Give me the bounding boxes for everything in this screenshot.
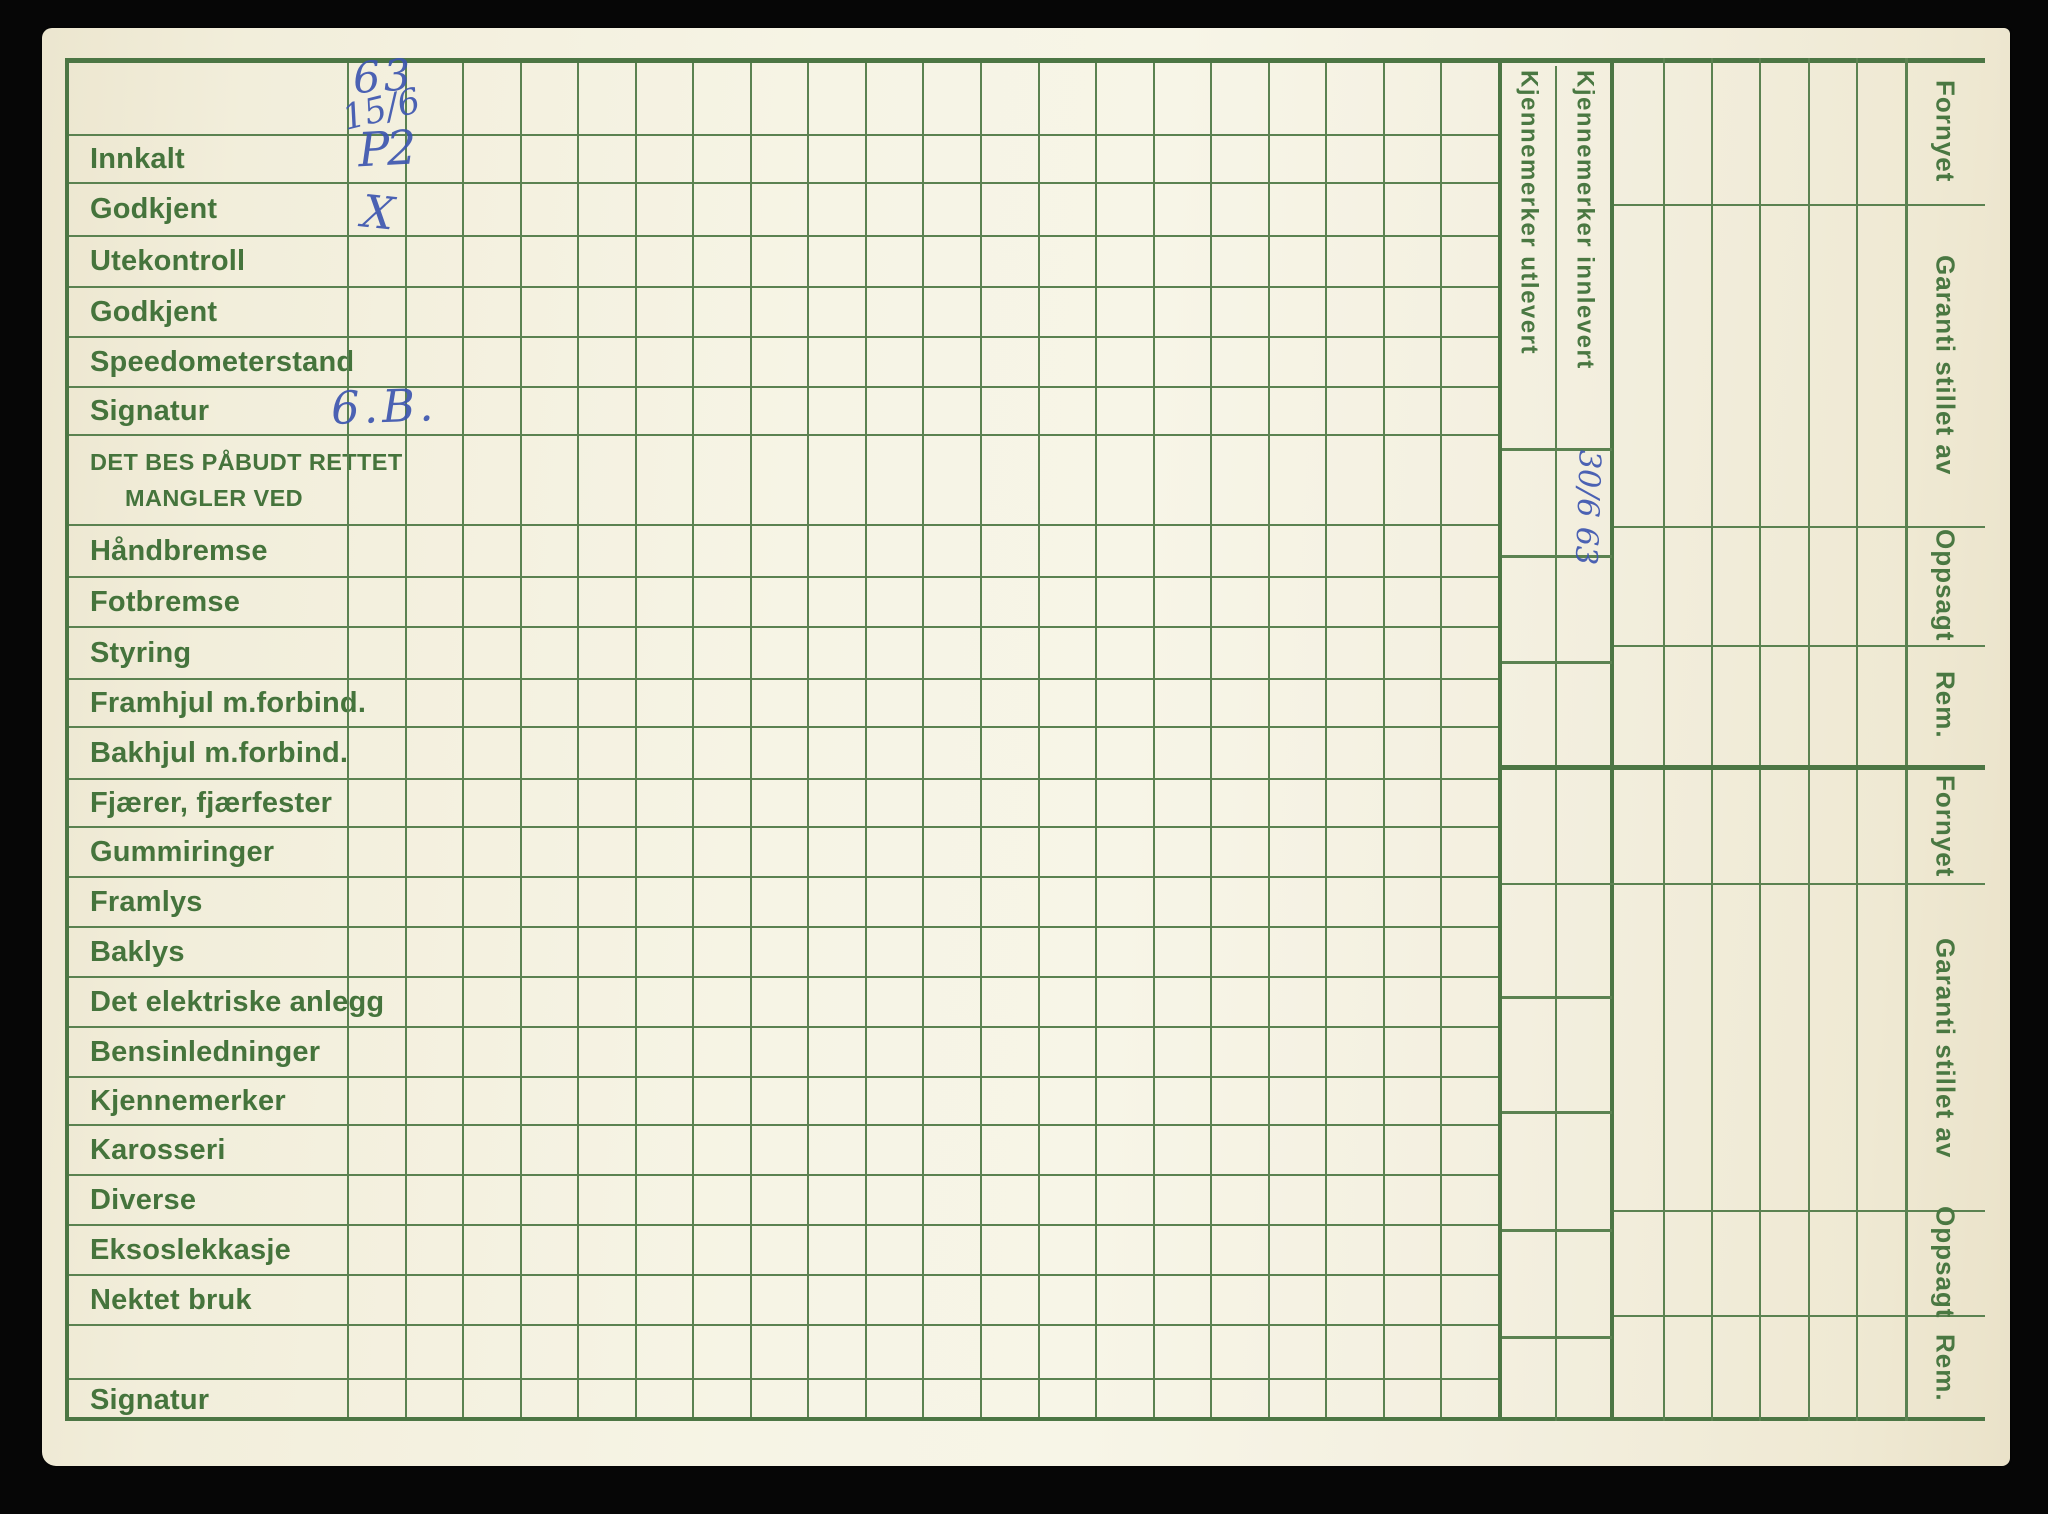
grid-cell: [865, 628, 923, 678]
grid-cell: [1038, 1176, 1096, 1224]
form-row: [65, 1326, 1498, 1380]
grid-cell: [462, 338, 520, 386]
grid-cell: [577, 1078, 635, 1124]
grid-cell: [1268, 1380, 1326, 1421]
grid-cell: [1095, 288, 1153, 336]
grid-cell: [635, 828, 693, 876]
grid-cell: [1440, 1226, 1498, 1274]
grid-cell: [577, 288, 635, 336]
grid-cell: [1095, 978, 1153, 1026]
grid-cell: [1210, 1326, 1268, 1378]
row-cells: [347, 526, 1498, 576]
grid-cell: [1383, 680, 1441, 726]
grid-cell: [865, 1326, 923, 1378]
grid-cell: [865, 1126, 923, 1174]
form-row: Kjennemerker: [65, 1078, 1498, 1126]
row-cells: [347, 828, 1498, 876]
grid-cell: [807, 680, 865, 726]
grid-cell: [462, 58, 520, 134]
grid-cell: [1038, 1226, 1096, 1274]
grid-cell: [980, 237, 1038, 286]
grid-cell: [1268, 1078, 1326, 1124]
form-row: Utekontroll: [65, 237, 1498, 288]
grid-cell: [1268, 288, 1326, 336]
grid-cell: [1325, 1126, 1383, 1174]
grid-cell: [1325, 184, 1383, 235]
grid-cell: [807, 628, 865, 678]
grid-cell: [1153, 928, 1211, 976]
grid-cell: [980, 578, 1038, 626]
grid-cell: [577, 338, 635, 386]
grid-cell: [577, 1028, 635, 1076]
margin-section-rem-: Rem.: [1911, 645, 1979, 765]
grid-cell: [1325, 728, 1383, 778]
grid-cell: [750, 436, 808, 524]
grid-cell: [1325, 237, 1383, 286]
grid-cell: [807, 184, 865, 235]
grid-cell: [1383, 728, 1441, 778]
grid-cell: [347, 828, 405, 876]
grid-cell: [347, 526, 405, 576]
grid-cell: [807, 526, 865, 576]
grid-cell: [1210, 237, 1268, 286]
grid-cell: [520, 1176, 578, 1224]
grid-cell: [635, 1226, 693, 1274]
grid-cell: [1440, 184, 1498, 235]
grid-cell: [635, 58, 693, 134]
form-row: Baklys: [65, 928, 1498, 978]
grid-cell: [1268, 526, 1326, 576]
grid-cell: [692, 1176, 750, 1224]
grid-cell: [462, 578, 520, 626]
grid-cell: [1383, 628, 1441, 678]
grid-cell: [462, 1126, 520, 1174]
grid-cell: [635, 288, 693, 336]
grid-cell: [692, 338, 750, 386]
grid-cell: [750, 1176, 808, 1224]
grid-cell: [405, 1380, 463, 1421]
row-label: [65, 58, 347, 134]
grid-cell: [1153, 578, 1211, 626]
grid-cell: [520, 978, 578, 1026]
grid-cell: [1268, 58, 1326, 134]
grid-cell: [347, 1276, 405, 1324]
grid-cell: [577, 1176, 635, 1224]
grid-cell: [462, 1326, 520, 1378]
grid-cell: [692, 237, 750, 286]
grid-cell: [635, 878, 693, 926]
grid-cell: [1210, 878, 1268, 926]
grid-cell: [922, 338, 980, 386]
grid-cell: [1153, 1078, 1211, 1124]
form-row: Godkjent: [65, 288, 1498, 338]
form-row: Håndbremse: [65, 526, 1498, 578]
grid-cell: [865, 1078, 923, 1124]
grid-cell: [807, 136, 865, 182]
grid-cell: [1383, 1226, 1441, 1274]
grid-cell: [692, 728, 750, 778]
grid-cell: [462, 780, 520, 826]
grid-cell: [807, 1226, 865, 1274]
grid-cell: [1325, 526, 1383, 576]
grid-cell: [922, 680, 980, 726]
grid-cell: [405, 680, 463, 726]
grid-cell: [520, 1126, 578, 1174]
kjennemerker-innlevert-label: Kjennemerker innlevert: [1571, 70, 1599, 410]
grid-cell: [1210, 338, 1268, 386]
grid-cell: [750, 978, 808, 1026]
grid-cell: [635, 1126, 693, 1174]
grid-cell: [750, 728, 808, 778]
grid-cell: [692, 436, 750, 524]
grid-cell: [922, 526, 980, 576]
row-cells: [347, 628, 1498, 678]
row-cells: [347, 1078, 1498, 1124]
margin-section-label: Garanti stillet av: [1930, 255, 1961, 475]
main-table: InnkaltGodkjentUtekontrollGodkjentSpeedo…: [65, 58, 1498, 1421]
grid-cell: [577, 388, 635, 434]
row-cells: [347, 978, 1498, 1026]
kjennemerker-utlevert-label: Kjennemerker utlevert: [1515, 70, 1543, 410]
grid-cell: [1210, 628, 1268, 678]
grid-cell: [1153, 1126, 1211, 1174]
grid-cell: [692, 526, 750, 576]
row-cells: [347, 136, 1498, 182]
grid-cell: [1210, 1380, 1268, 1421]
row-label: Karosseri: [65, 1126, 347, 1174]
grid-cell: [347, 728, 405, 778]
grid-cell: [980, 1028, 1038, 1076]
grid-cell: [1038, 1380, 1096, 1421]
row-label: DET BES PÅBUDT RETTETMANGLER VED: [65, 436, 347, 524]
scanned-document: { "form": { "rows": [ {"label": ""}, {"l…: [0, 0, 2048, 1514]
grid-cell: [347, 1176, 405, 1224]
grid-cell: [520, 436, 578, 524]
grid-cell: [922, 1078, 980, 1124]
grid-cell: [347, 1380, 405, 1421]
grid-cell: [520, 526, 578, 576]
grid-cell: [405, 878, 463, 926]
grid-cell: [692, 1276, 750, 1324]
grid-cell: [692, 184, 750, 235]
grid-cell: [347, 928, 405, 976]
grid-cell: [807, 1078, 865, 1124]
grid-cell: [1095, 526, 1153, 576]
grid-cell: [347, 237, 405, 286]
grid-cell: [1383, 878, 1441, 926]
grid-cell: [692, 288, 750, 336]
grid-cell: [692, 1078, 750, 1124]
grid-line: [1502, 1336, 1612, 1339]
grid-cell: [520, 1276, 578, 1324]
grid-cell: [1095, 388, 1153, 434]
grid-cell: [1153, 184, 1211, 235]
grid-cell: [1210, 526, 1268, 576]
grid-cell: [462, 828, 520, 876]
grid-cell: [980, 978, 1038, 1026]
grid-cell: [405, 1326, 463, 1378]
row-label: Bakhjul m.forbind.: [65, 728, 347, 778]
grid-cell: [1210, 780, 1268, 826]
grid-cell: [922, 1380, 980, 1421]
row-label: Eksoslekkasje: [65, 1226, 347, 1274]
grid-cell: [865, 288, 923, 336]
grid-cell: [635, 780, 693, 826]
grid-cell: [405, 1276, 463, 1324]
margin-section-garanti-stillet-av: Garanti stillet av: [1911, 204, 1979, 526]
grid-cell: [1095, 1226, 1153, 1274]
grid-cell: [1210, 388, 1268, 434]
grid-cell: [980, 1380, 1038, 1421]
grid-cell: [750, 828, 808, 876]
grid-cell: [692, 628, 750, 678]
grid-cell: [635, 928, 693, 976]
grid-cell: [1383, 237, 1441, 286]
grid-cell: [1210, 1176, 1268, 1224]
grid-cell: [462, 136, 520, 182]
grid-cell: [807, 1326, 865, 1378]
form-row: Framhjul m.forbind.: [65, 680, 1498, 728]
row-cells: [347, 680, 1498, 726]
grid-line: [65, 1417, 1985, 1421]
grid-cell: [1440, 978, 1498, 1026]
form-row: Fjærer, fjærfester: [65, 780, 1498, 828]
grid-cell: [1440, 628, 1498, 678]
grid-cell: [577, 578, 635, 626]
handwriting-innlevert-date: 30/6 63: [1561, 450, 1611, 615]
grid-cell: [1095, 1078, 1153, 1124]
grid-cell: [980, 728, 1038, 778]
grid-cell: [1268, 978, 1326, 1026]
row-cells: [347, 436, 1498, 524]
grid-cell: [405, 978, 463, 1026]
grid-cell: [1210, 184, 1268, 235]
grid-cell: [405, 578, 463, 626]
grid-cell: [1038, 1078, 1096, 1124]
grid-cell: [1383, 58, 1441, 134]
grid-cell: [750, 136, 808, 182]
grid-cell: [1440, 1126, 1498, 1174]
grid-cell: [865, 388, 923, 434]
grid-cell: [347, 1226, 405, 1274]
form-row: Gummiringer: [65, 828, 1498, 878]
grid-cell: [1038, 136, 1096, 182]
margin-section-garanti-stillet-av: Garanti stillet av: [1911, 887, 1979, 1210]
grid-cell: [405, 780, 463, 826]
grid-cell: [1325, 780, 1383, 826]
grid-cell: [405, 928, 463, 976]
grid-cell: [1210, 288, 1268, 336]
margin-section-label: Oppsagt: [1930, 529, 1961, 641]
grid-cell: [1383, 578, 1441, 626]
grid-cell: [577, 184, 635, 235]
grid-cell: [807, 578, 865, 626]
grid-cell: [1153, 780, 1211, 826]
row-cells: [347, 878, 1498, 926]
row-label: Fotbremse: [65, 578, 347, 626]
grid-cell: [980, 1326, 1038, 1378]
margin-section-label: Garanti stillet av: [1930, 938, 1961, 1158]
form-row: Diverse: [65, 1176, 1498, 1226]
row-cells: [347, 728, 1498, 778]
grid-cell: [750, 526, 808, 576]
grid-cell: [405, 1126, 463, 1174]
grid-cell: [1383, 1078, 1441, 1124]
grid-cell: [1210, 978, 1268, 1026]
grid-cell: [1325, 1380, 1383, 1421]
grid-cell: [980, 878, 1038, 926]
margin-section-oppsagt: Oppsagt: [1911, 526, 1979, 645]
grid-cell: [1038, 1326, 1096, 1378]
grid-cell: [692, 780, 750, 826]
handwriting-innkalt: P2: [357, 121, 415, 179]
grid-cell: [922, 1276, 980, 1324]
grid-cell: [577, 436, 635, 524]
grid-cell: [1383, 928, 1441, 976]
grid-cell: [1153, 237, 1211, 286]
grid-cell: [1210, 1276, 1268, 1324]
grid-cell: [1268, 1126, 1326, 1174]
grid-cell: [980, 388, 1038, 434]
grid-cell: [1325, 1176, 1383, 1224]
grid-cell: [692, 978, 750, 1026]
grid-cell: [750, 1028, 808, 1076]
grid-cell: [807, 780, 865, 826]
grid-cell: [922, 436, 980, 524]
grid-cell: [462, 680, 520, 726]
grid-cell: [1268, 728, 1326, 778]
grid-cell: [520, 680, 578, 726]
grid-cell: [922, 828, 980, 876]
grid-cell: [1210, 436, 1268, 524]
grid-cell: [520, 878, 578, 926]
grid-cell: [1210, 1226, 1268, 1274]
grid-cell: [1268, 780, 1326, 826]
grid-cell: [577, 1326, 635, 1378]
grid-cell: [405, 288, 463, 336]
grid-cell: [635, 526, 693, 576]
grid-cell: [577, 1126, 635, 1174]
grid-cell: [807, 728, 865, 778]
grid-cell: [922, 780, 980, 826]
grid-cell: [405, 184, 463, 235]
grid-cell: [1153, 136, 1211, 182]
grid-cell: [405, 1176, 463, 1224]
form-row: Bensinledninger: [65, 1028, 1498, 1078]
grid-cell: [1038, 184, 1096, 235]
grid-cell: [1153, 1226, 1211, 1274]
grid-cell: [1383, 436, 1441, 524]
grid-cell: [980, 1176, 1038, 1224]
grid-cell: [750, 1276, 808, 1324]
grid-cell: [1038, 728, 1096, 778]
grid-cell: [635, 338, 693, 386]
grid-cell: [1095, 58, 1153, 134]
grid-cell: [692, 1326, 750, 1378]
grid-cell: [865, 928, 923, 976]
grid-cell: [1325, 828, 1383, 876]
grid-cell: [1440, 680, 1498, 726]
grid-cell: [405, 526, 463, 576]
grid-cell: [865, 338, 923, 386]
grid-cell: [807, 1028, 865, 1076]
grid-cell: [692, 388, 750, 434]
form-row: Det elektriske anlegg: [65, 978, 1498, 1028]
grid-cell: [1038, 680, 1096, 726]
grid-cell: [520, 1380, 578, 1421]
grid-cell: [1095, 728, 1153, 778]
grid-cell: [462, 1028, 520, 1076]
grid-cell: [807, 1126, 865, 1174]
row-label: [65, 1326, 347, 1378]
grid-cell: [462, 436, 520, 524]
grid-cell: [1153, 1176, 1211, 1224]
grid-cell: [462, 184, 520, 235]
grid-cell: [807, 1276, 865, 1324]
row-label: Signatur: [65, 388, 347, 434]
grid-line: [1856, 58, 1858, 1421]
form-grid: InnkaltGodkjentUtekontrollGodkjentSpeedo…: [65, 58, 1985, 1421]
grid-cell: [692, 58, 750, 134]
grid-cell: [520, 184, 578, 235]
row-cells: [347, 928, 1498, 976]
grid-cell: [980, 628, 1038, 678]
grid-cell: [922, 628, 980, 678]
grid-cell: [980, 436, 1038, 524]
handwriting-signature: 6.B.: [330, 378, 438, 435]
form-row: Fotbremse: [65, 578, 1498, 628]
grid-cell: [1038, 578, 1096, 626]
grid-cell: [462, 1176, 520, 1224]
grid-cell: [405, 1028, 463, 1076]
grid-cell: [1095, 136, 1153, 182]
grid-cell: [1325, 388, 1383, 434]
row-label: Framlys: [65, 878, 347, 926]
grid-cell: [347, 780, 405, 826]
grid-cell: [1383, 780, 1441, 826]
grid-cell: [1325, 878, 1383, 926]
grid-cell: [922, 578, 980, 626]
margin-section-fornyet: Fornyet: [1911, 765, 1979, 887]
grid-cell: [807, 436, 865, 524]
grid-cell: [635, 1176, 693, 1224]
grid-cell: [1440, 1276, 1498, 1324]
grid-cell: [1440, 928, 1498, 976]
grid-cell: [1038, 628, 1096, 678]
form-row: Karosseri: [65, 1126, 1498, 1176]
grid-cell: [807, 237, 865, 286]
grid-cell: [1325, 288, 1383, 336]
row-cells: [347, 58, 1498, 134]
grid-cell: [1268, 436, 1326, 524]
grid-cell: [807, 978, 865, 1026]
row-cells: [347, 388, 1498, 434]
grid-cell: [520, 1078, 578, 1124]
grid-cell: [1038, 526, 1096, 576]
grid-cell: [635, 184, 693, 235]
margin-section-label: Oppsagt: [1930, 1206, 1961, 1318]
grid-cell: [635, 1326, 693, 1378]
grid-cell: [577, 237, 635, 286]
grid-cell: [865, 526, 923, 576]
grid-cell: [1153, 728, 1211, 778]
grid-cell: [1153, 288, 1211, 336]
grid-cell: [1038, 288, 1096, 336]
column-kjennemerker-utlevert: Kjennemerker utlevert: [1502, 70, 1555, 410]
grid-cell: [1095, 1028, 1153, 1076]
grid-cell: [577, 780, 635, 826]
grid-cell: [865, 878, 923, 926]
